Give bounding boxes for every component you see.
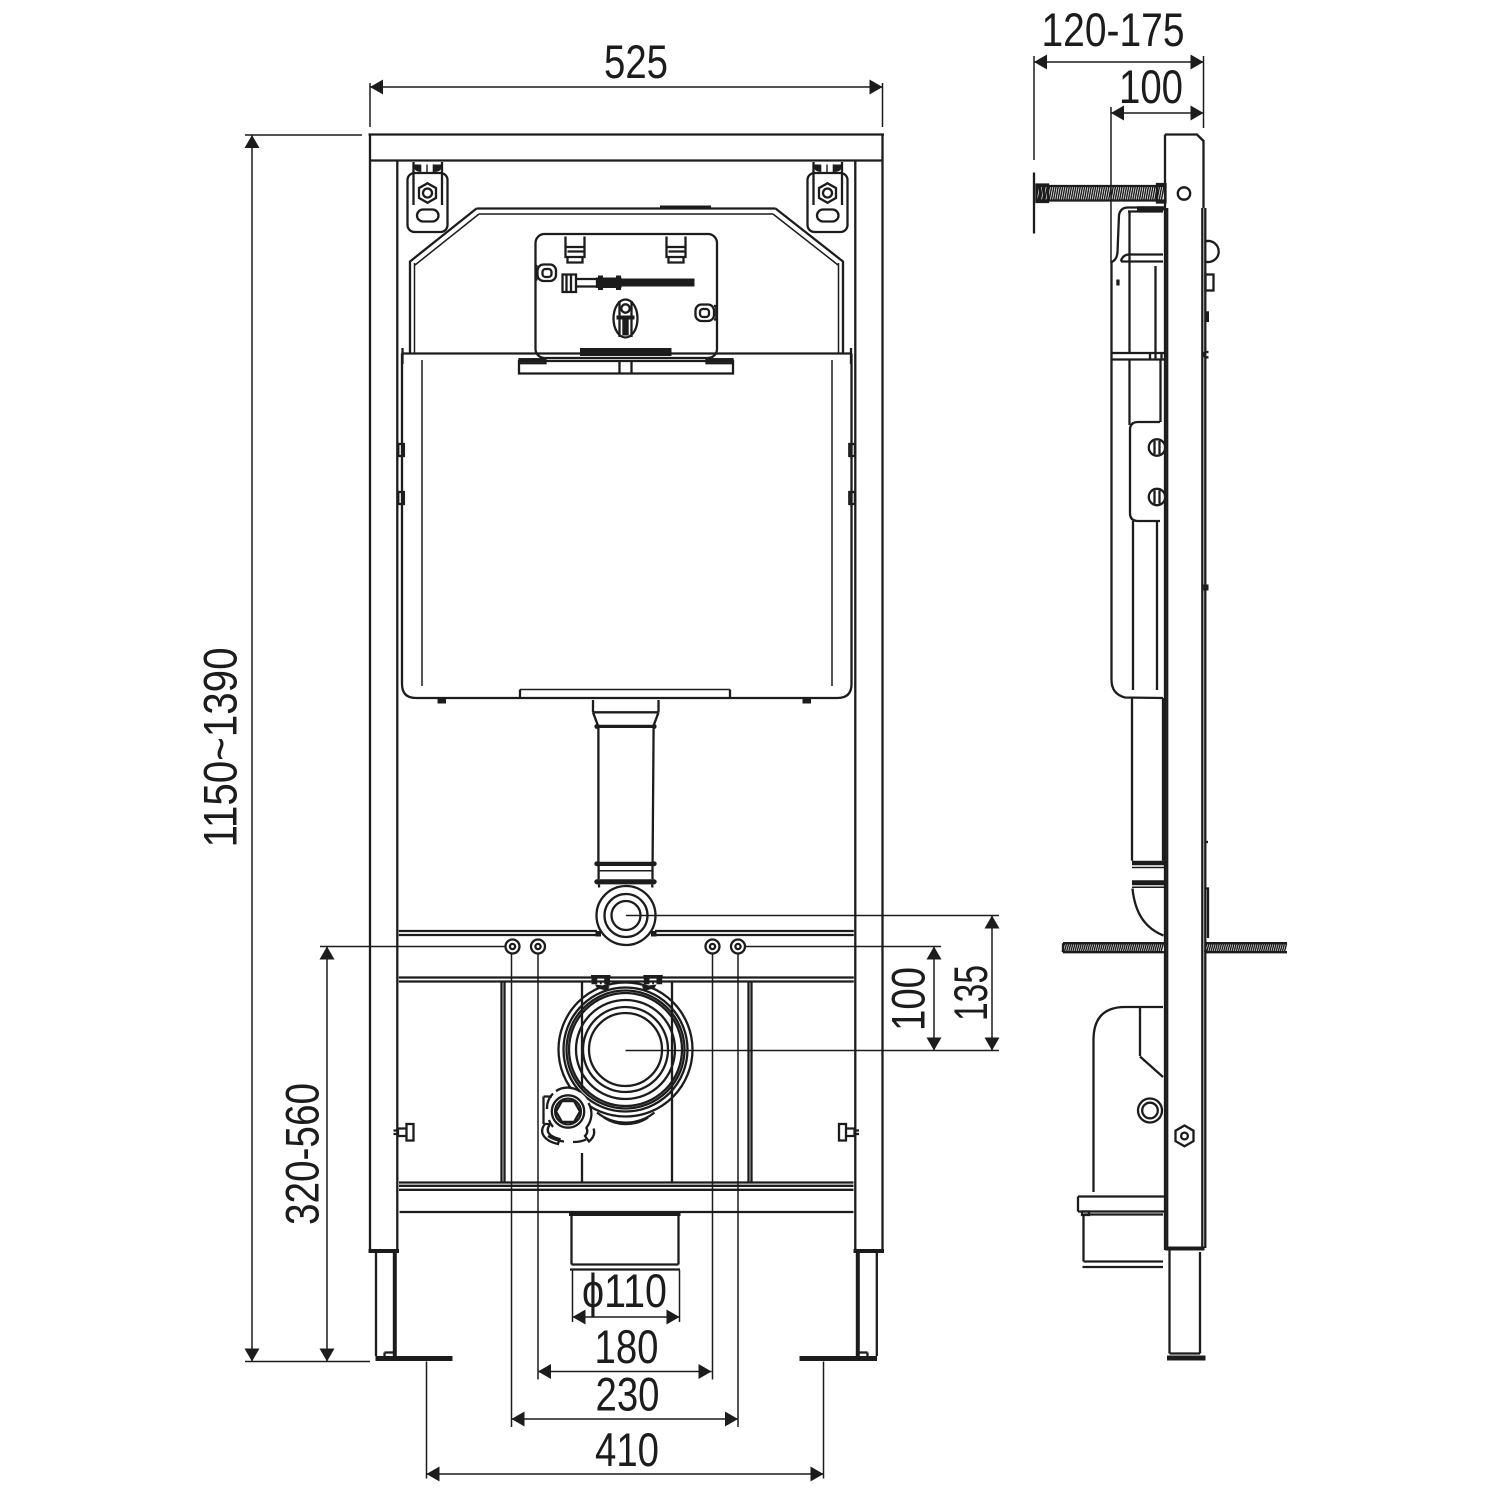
svg-text:525: 525 [604,35,668,88]
svg-text:135: 135 [944,965,997,1021]
svg-text:230: 230 [596,1368,660,1421]
svg-text:320-560: 320-560 [276,1083,329,1225]
svg-text:410: 410 [595,1423,659,1476]
svg-text:100: 100 [882,967,935,1031]
svg-text:120-175: 120-175 [1042,3,1185,56]
svg-text:1150~1390: 1150~1390 [194,648,247,848]
svg-text:ϕ110: ϕ110 [582,1264,667,1317]
svg-text:100: 100 [1119,60,1183,113]
svg-text:180: 180 [595,1320,659,1373]
